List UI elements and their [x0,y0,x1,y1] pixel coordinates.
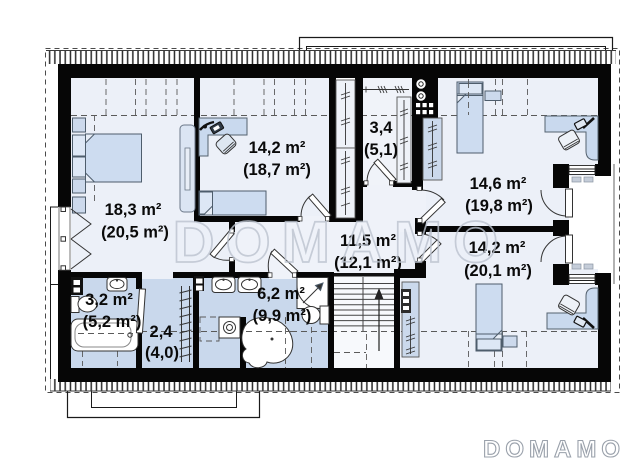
svg-text:(5,1): (5,1) [364,141,398,159]
svg-text:(20,5 m²): (20,5 m²) [101,224,169,242]
svg-text:14,6 m²: 14,6 m² [470,175,527,193]
svg-text:3,2 m²: 3,2 m² [85,291,133,309]
svg-text:(4,0): (4,0) [145,344,179,362]
svg-text:6,2 m²: 6,2 m² [257,285,305,303]
svg-text:3,4: 3,4 [370,119,394,137]
svg-text:(18,7 m²): (18,7 m²) [243,161,311,179]
svg-text:2,4: 2,4 [150,323,174,341]
svg-text:(5,2 m²): (5,2 m²) [83,313,142,331]
svg-text:(9,9 m²): (9,9 m²) [253,307,312,325]
svg-text:18,3 m²: 18,3 m² [105,201,162,219]
svg-text:DOMAMO: DOMAMO [173,210,510,275]
svg-text:14,2 m²: 14,2 m² [249,139,306,157]
svg-text:DOMAMO: DOMAMO [483,436,625,463]
